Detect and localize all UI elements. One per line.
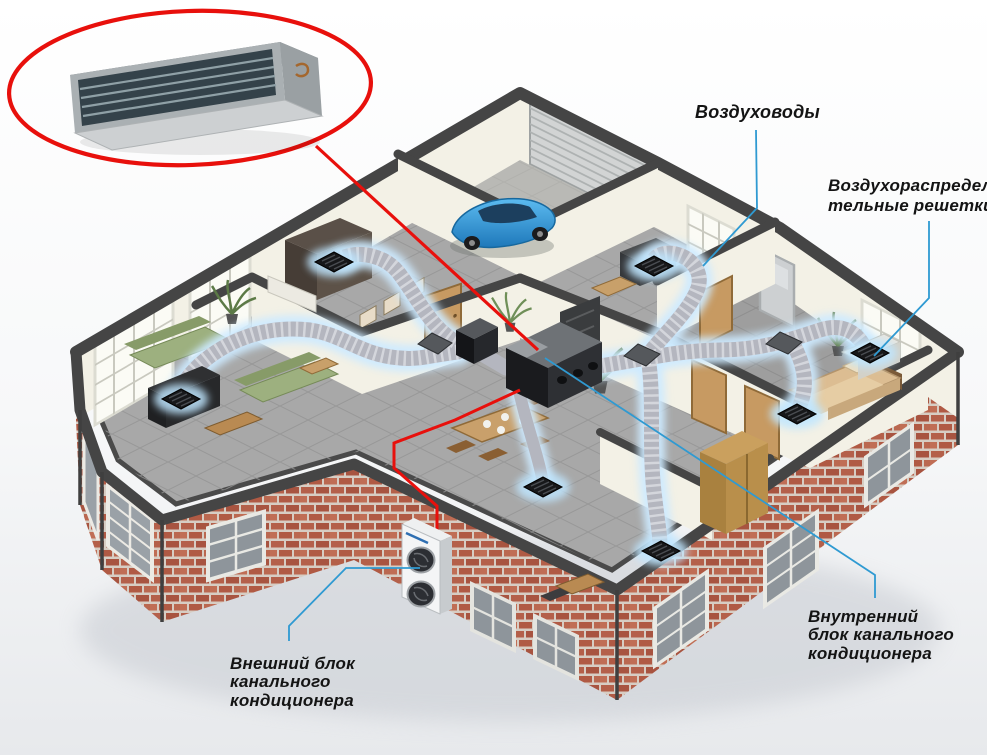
label-air-grilles: Воздухораспредели тельные решетки [828,176,987,215]
grille-living-room [154,384,208,414]
label-indoor-unit: Внутренний блок канального кондиционера [808,608,954,663]
grille-kitchen [307,247,361,277]
label-outdoor-unit: Внешний блок канального кондиционера [230,655,355,710]
label-air-ducts: Воздуховоды [695,103,820,122]
grille-bottom-room [634,536,688,566]
grille-bedroom-window [843,338,897,368]
grille-bedroom-floor [770,399,824,429]
grille-office [627,251,681,281]
grille-hall-floor [516,472,570,502]
hvac-diagram-canvas: Воздуховоды Воздухораспредели тельные ре… [0,0,987,755]
